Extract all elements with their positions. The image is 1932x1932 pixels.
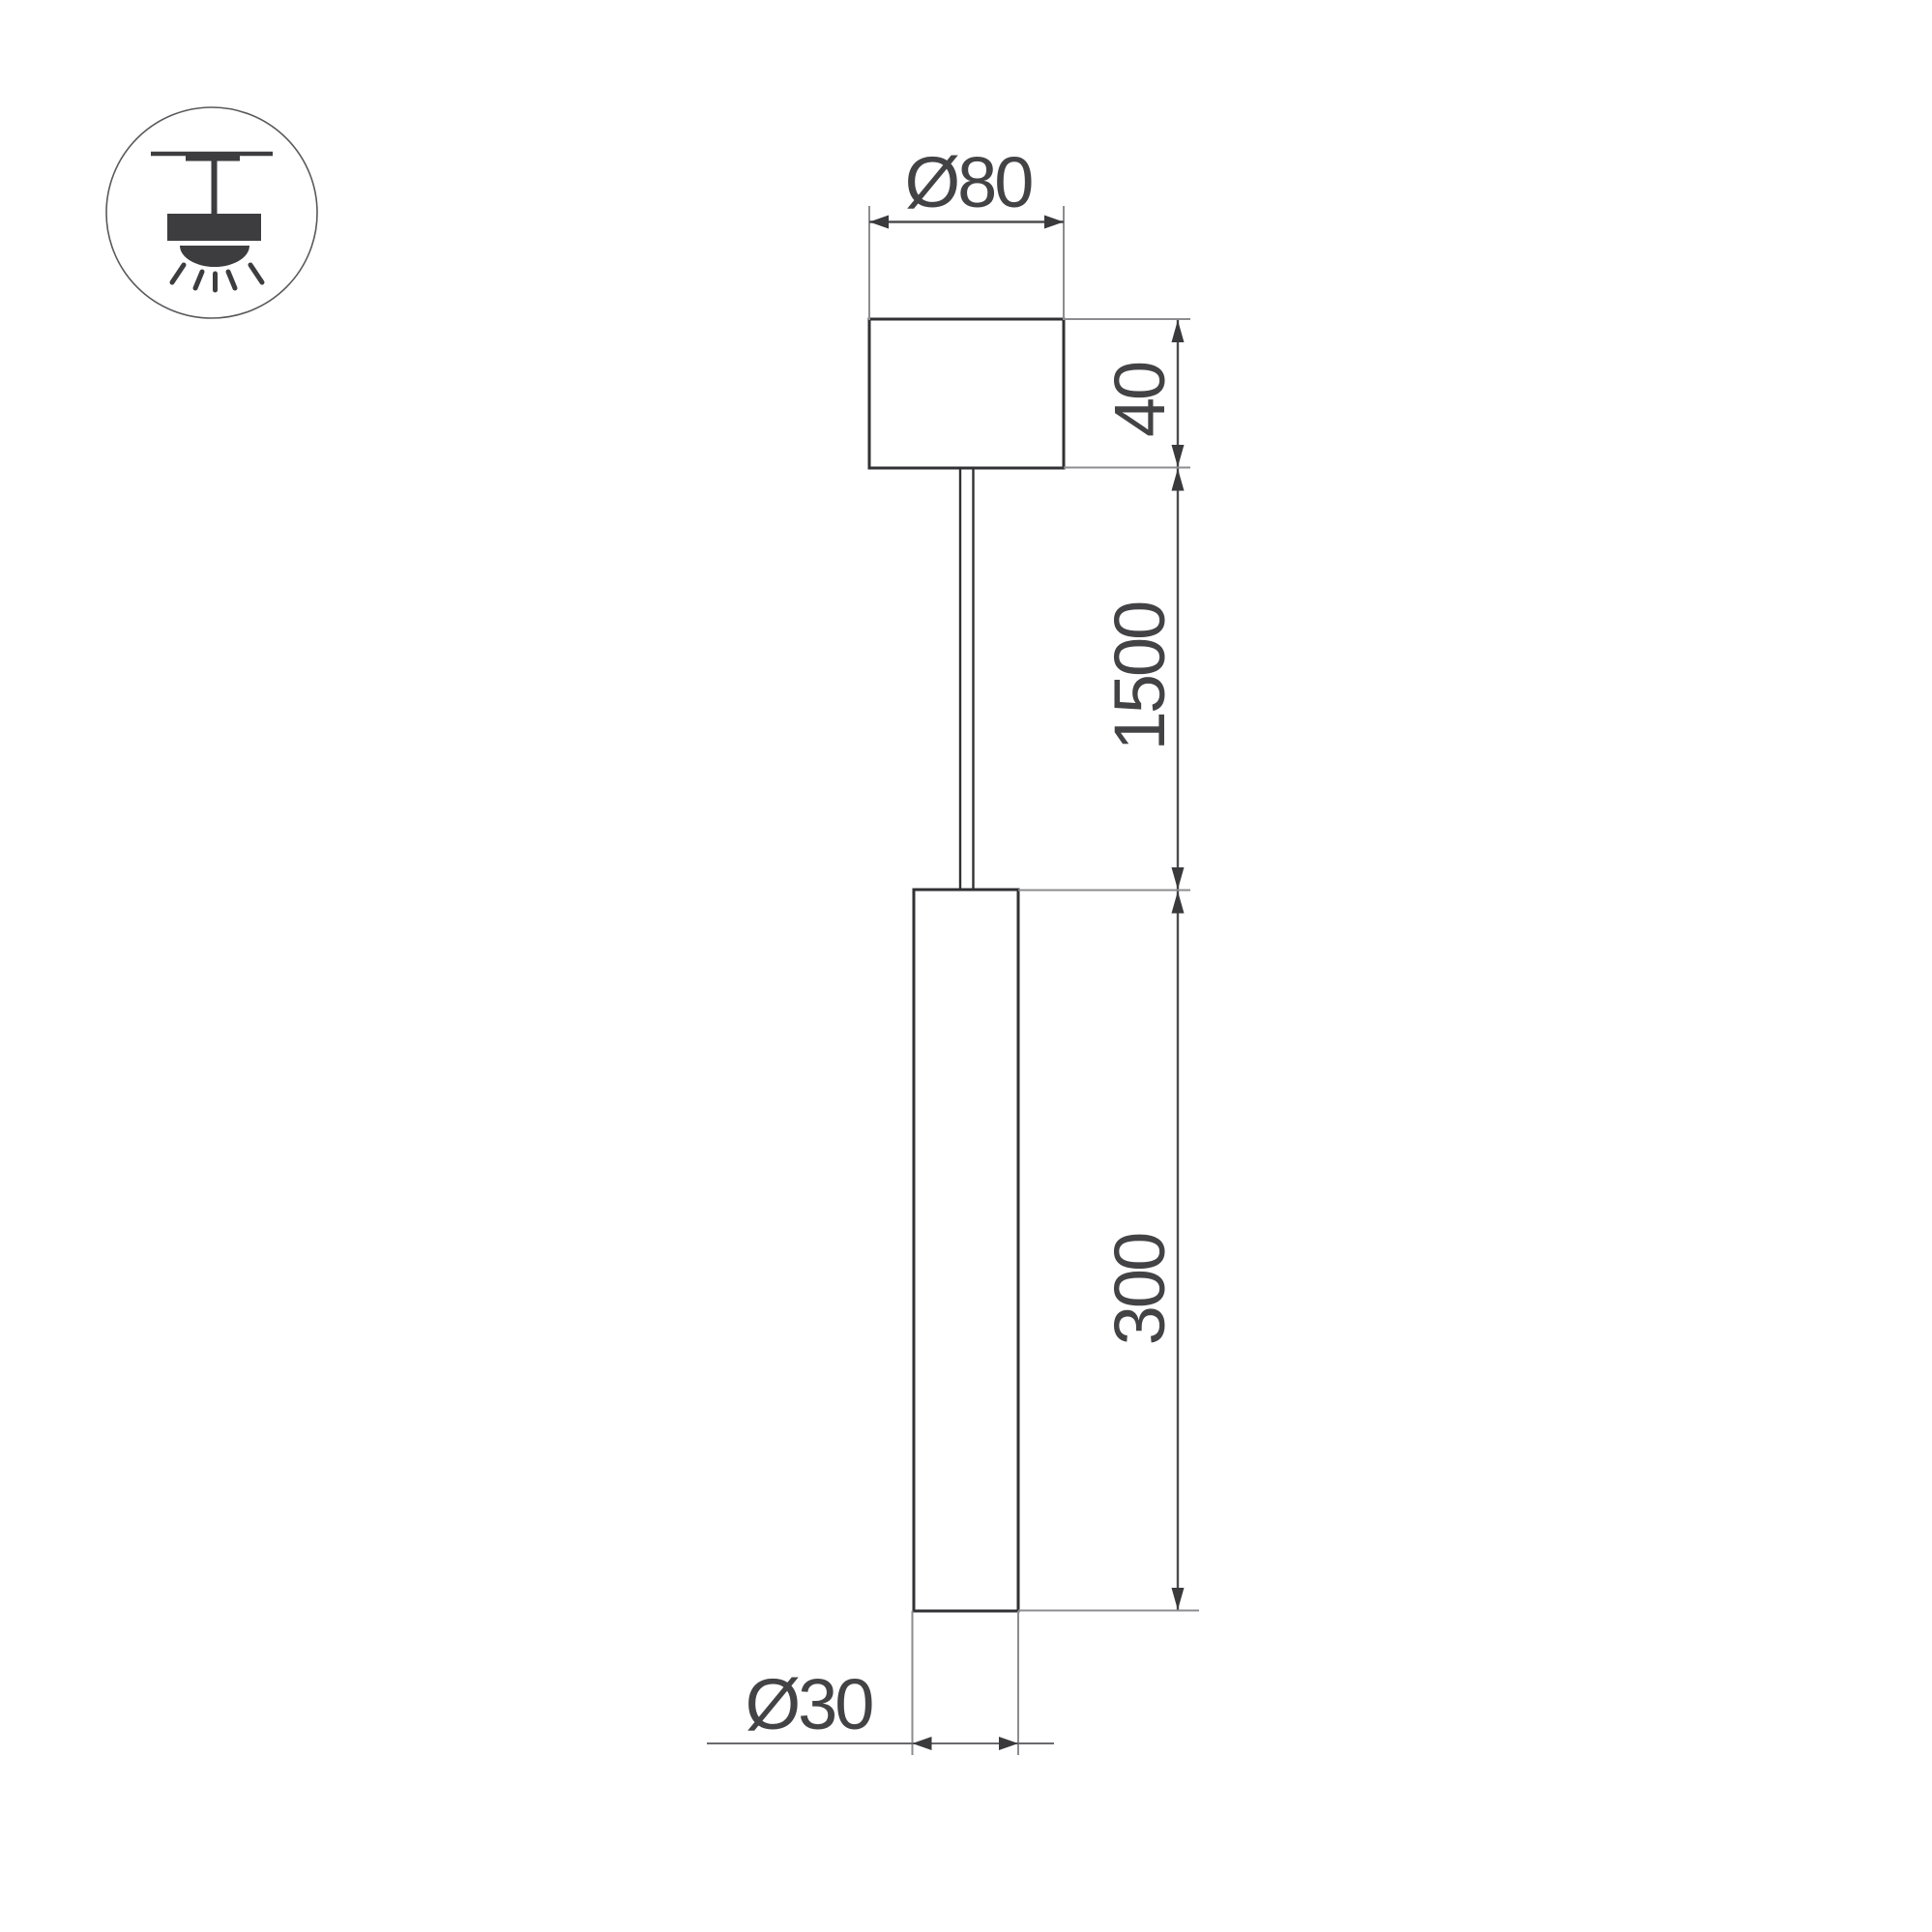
suspension-length-label: 1500 xyxy=(1099,602,1180,750)
arrowhead-right xyxy=(999,1737,1018,1750)
light-ray xyxy=(195,272,202,288)
arrowhead-left xyxy=(869,216,889,229)
dimension-chain-right: 40 1500 300 xyxy=(1018,319,1199,1611)
canopy-height-label: 40 xyxy=(1099,363,1180,437)
dimension-canopy-diameter: Ø80 xyxy=(869,142,1064,320)
canopy xyxy=(869,319,1064,468)
arrowhead-up xyxy=(1172,892,1185,914)
lamp-body xyxy=(167,214,261,241)
light-ray xyxy=(228,272,235,288)
pendant-lamp-icon xyxy=(106,107,317,318)
arrowhead-down xyxy=(1172,1588,1185,1610)
dimension-canopy-height: 40 xyxy=(1099,320,1185,467)
dimension-suspension-length: 1500 xyxy=(1099,469,1185,891)
light-ray xyxy=(250,265,262,282)
arrowhead-right xyxy=(1044,216,1064,229)
dimension-tube-length: 300 xyxy=(1099,892,1185,1611)
technical-drawing-page: Ø80 40 1500 xyxy=(0,0,1932,1932)
arrowhead-down xyxy=(1172,445,1185,467)
lamp-diffuser-dome xyxy=(180,246,249,267)
luminaire-outline xyxy=(869,319,1064,1611)
arrowhead-left xyxy=(913,1737,932,1750)
dimension-tube-diameter: Ø30 xyxy=(707,1611,1054,1755)
arrowhead-up xyxy=(1172,320,1185,342)
tube-length-label: 300 xyxy=(1099,1234,1180,1345)
canopy-diameter-label: Ø80 xyxy=(905,142,1033,222)
arrowhead-down xyxy=(1172,867,1185,890)
lamp-tube xyxy=(914,890,1018,1611)
arrowhead-up xyxy=(1172,469,1185,491)
pendant-luminaire-dimension-drawing: Ø80 40 1500 xyxy=(0,0,1932,1932)
light-ray xyxy=(172,265,184,282)
light-rays-icon xyxy=(172,265,262,290)
tube-diameter-label: Ø30 xyxy=(746,1664,873,1744)
